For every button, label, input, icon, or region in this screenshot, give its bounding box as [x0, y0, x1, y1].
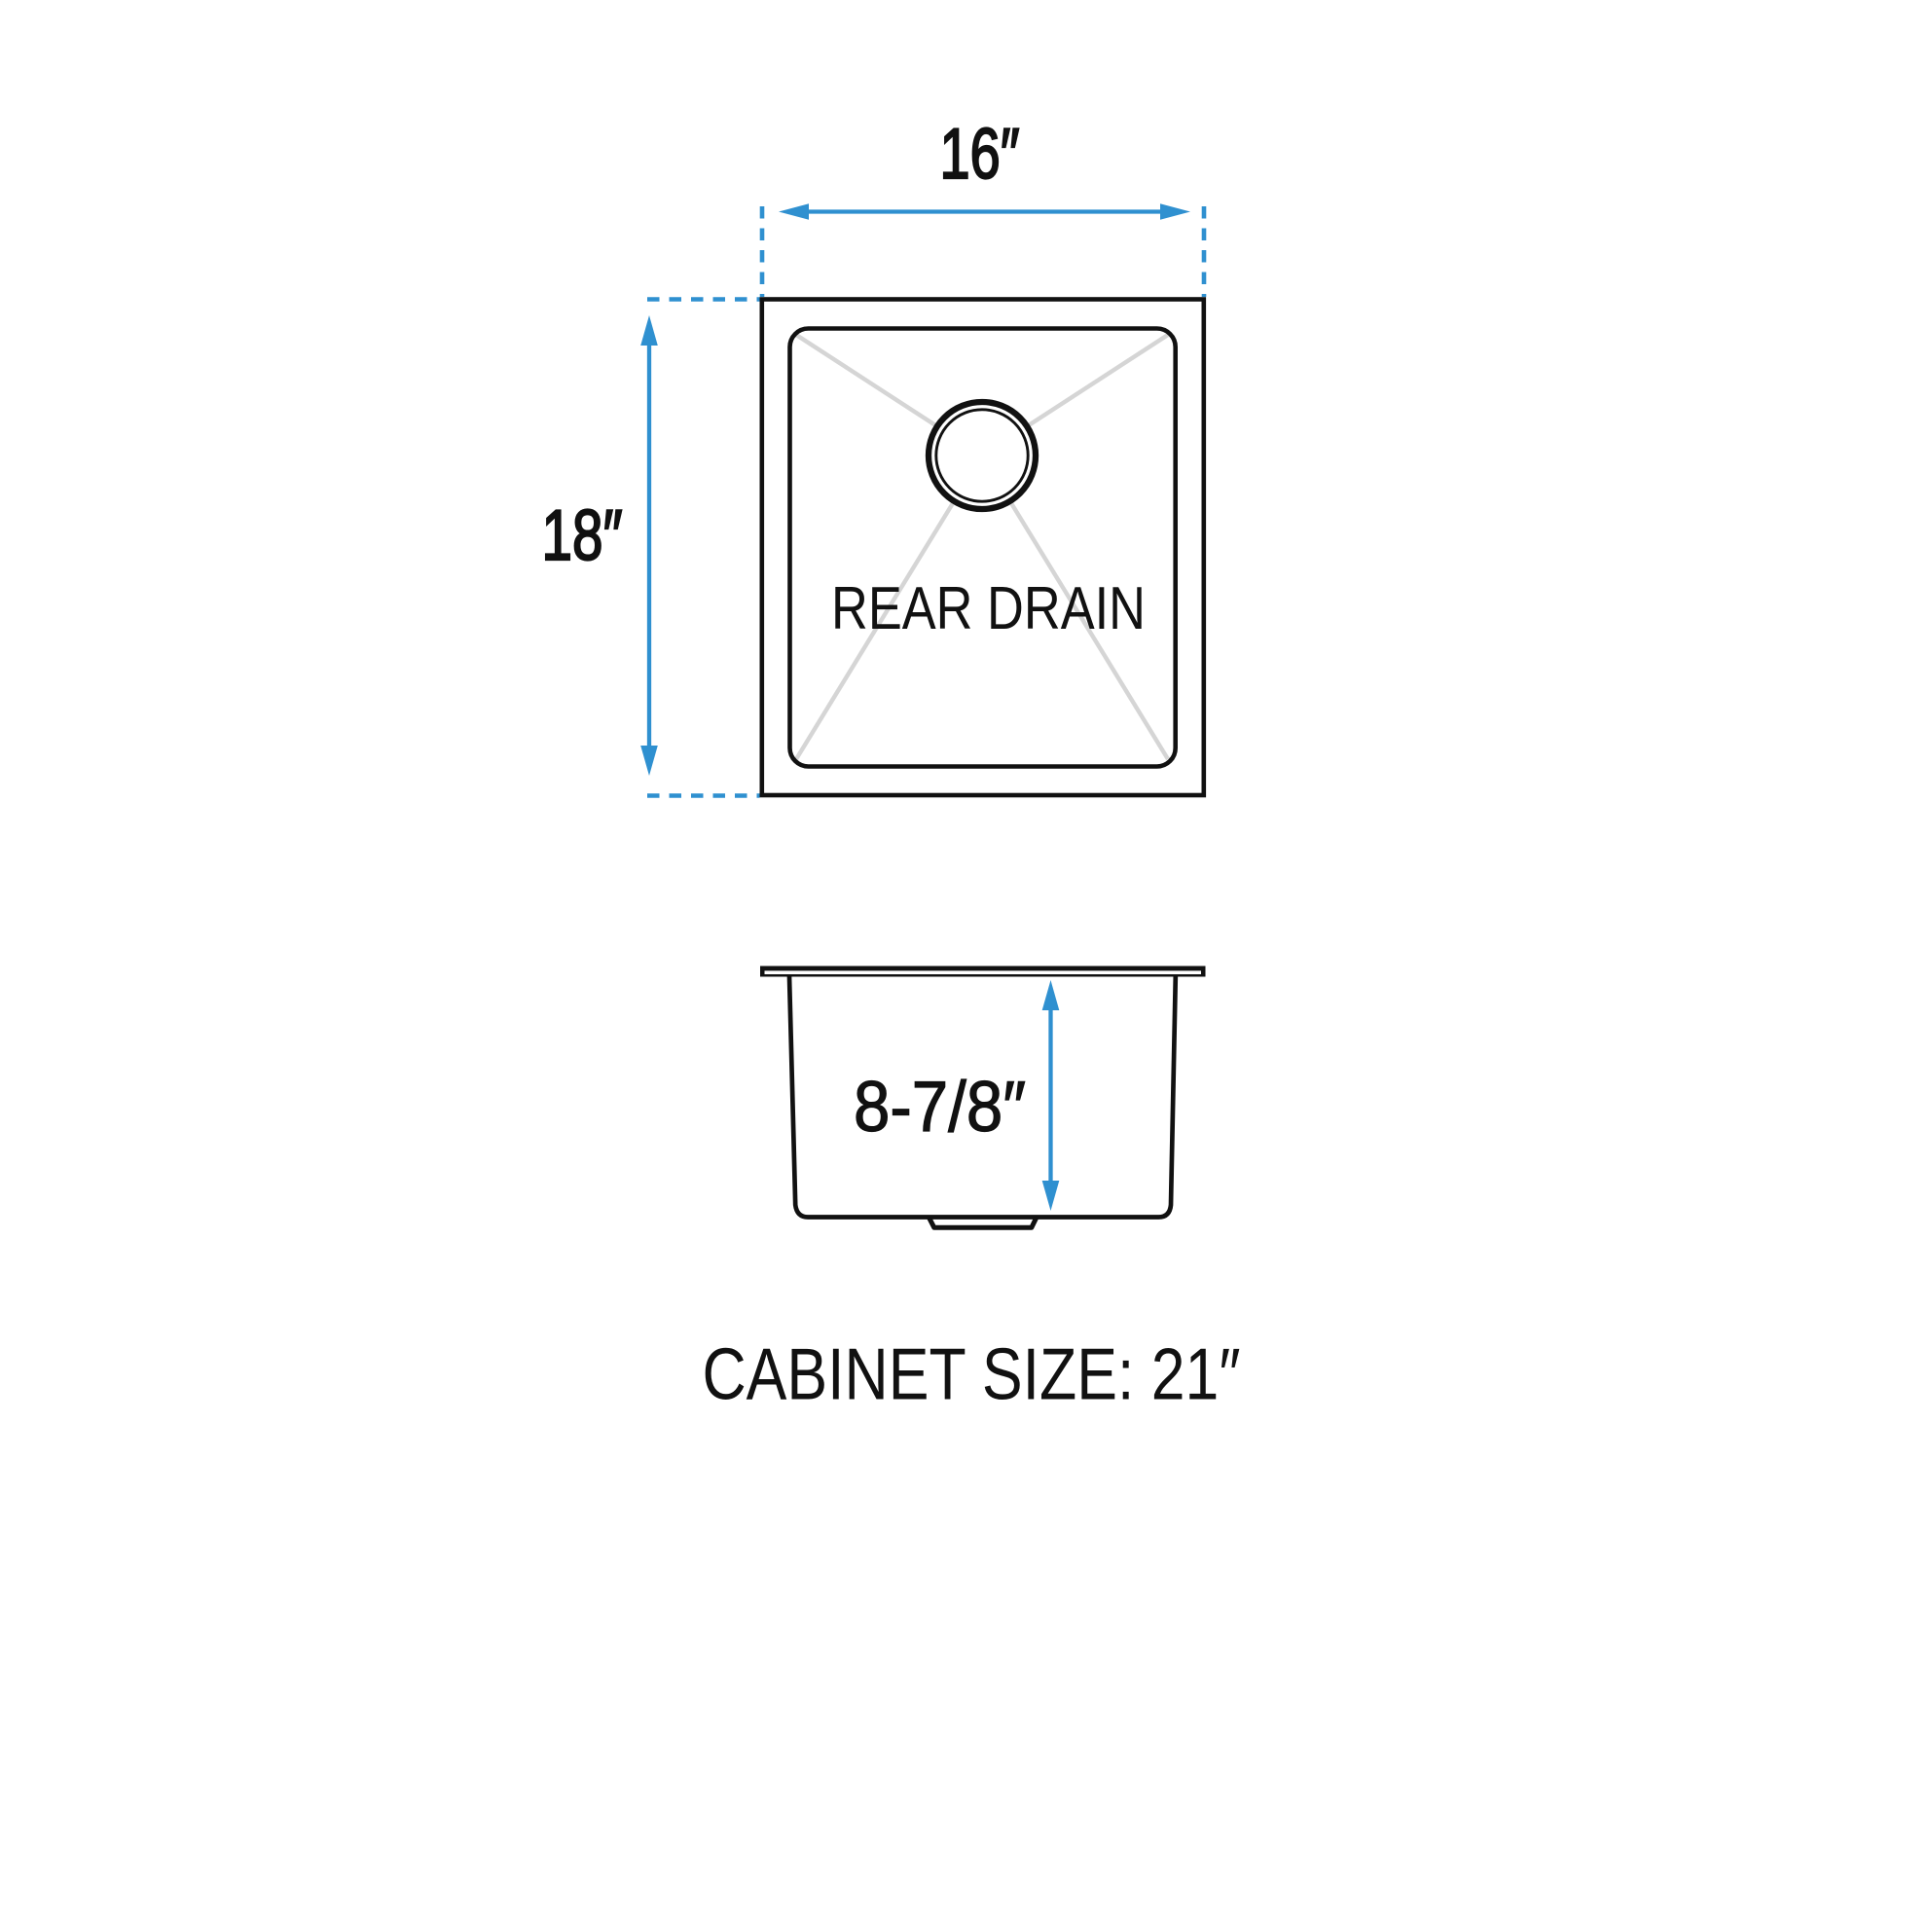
- svg-text:REAR DRAIN: REAR DRAIN: [831, 575, 1146, 642]
- svg-text:CABINET SIZE: 21″: CABINET SIZE: 21″: [703, 1333, 1241, 1415]
- svg-text:16″: 16″: [940, 115, 1020, 194]
- svg-text:18″: 18″: [542, 496, 623, 575]
- svg-text:8-7/8″: 8-7/8″: [854, 1068, 1026, 1147]
